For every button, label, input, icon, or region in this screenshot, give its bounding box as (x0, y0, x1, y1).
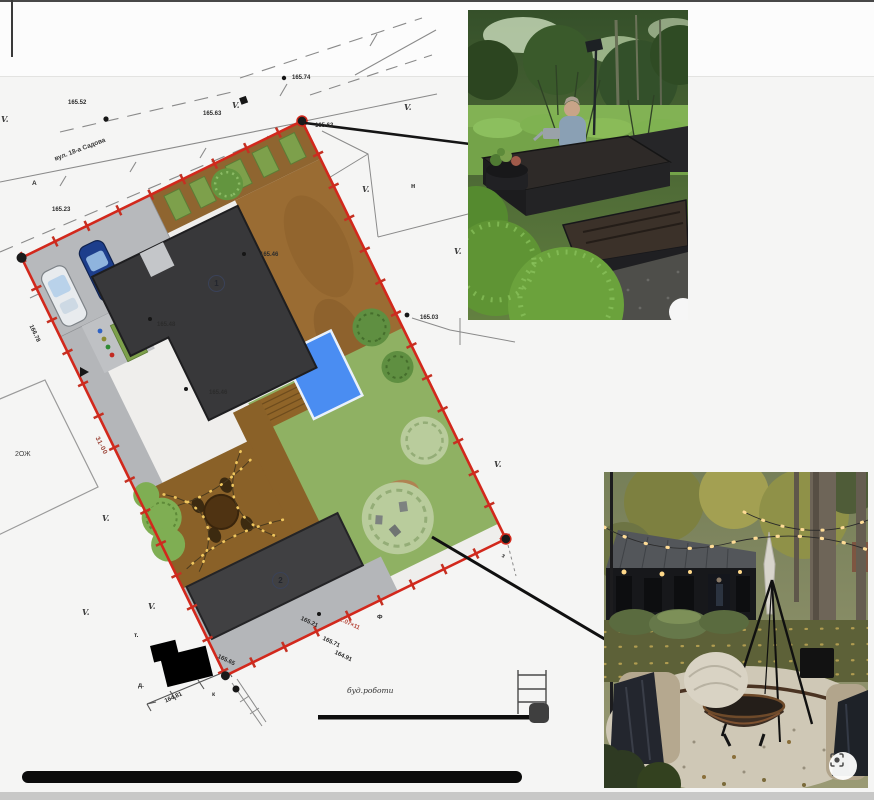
plan-letter: н (411, 183, 415, 190)
gray-square-marker (529, 703, 549, 723)
elevation-label: 165.74 (292, 75, 310, 81)
survey-mark: V. (82, 608, 90, 616)
plan-letter: Ф (377, 615, 383, 622)
bottom-redaction-bar (22, 771, 522, 783)
elevation-label: 165.46 (209, 390, 227, 396)
plan-letter: к (212, 692, 215, 698)
elevation-label: 165.23 (52, 207, 70, 213)
neighbor-building-label: 2ОЖ (15, 451, 31, 458)
elevation-label: 165.48 (157, 322, 175, 328)
survey-mark: V. (404, 103, 412, 111)
fire-pit-patio-photo[interactable] (604, 472, 868, 788)
construction-works-note: буд.роботи (347, 686, 393, 695)
survey-mark: V. (232, 101, 240, 109)
landscape-plan-page: 165.74 165.52 165.63 165.63 165.23 А н 1… (0, 0, 874, 800)
bottom-gray-band (0, 792, 874, 800)
elevation-label: 165.46 (260, 252, 278, 258)
scale-line (318, 715, 532, 720)
garden-photo-art (468, 10, 688, 320)
raised-garden-beds-photo[interactable] (468, 10, 688, 320)
survey-mark: V. (494, 460, 502, 468)
survey-mark: V. (148, 602, 156, 610)
plan-letter: А (32, 181, 37, 188)
black-box (800, 648, 834, 678)
lot-group (9, 114, 512, 685)
elevation-label: 165.03 (420, 315, 438, 321)
plan-letter: т. (134, 633, 138, 640)
elevation-label: 165.63 (203, 111, 221, 117)
plan-letter: д. (138, 683, 144, 690)
elevation-label: 165.63 (315, 123, 333, 129)
white-blanket-chair (684, 652, 748, 708)
visual-search-icon[interactable] (829, 752, 857, 780)
building-2-number: 2 (272, 572, 289, 589)
elevation-label: 165.52 (68, 100, 86, 106)
lens-glyph (829, 752, 845, 768)
survey-mark: V. (102, 514, 110, 522)
survey-mark: V. (1, 115, 9, 123)
survey-mark: V. (454, 247, 462, 255)
survey-mark: V. (362, 185, 370, 193)
building-1-number: 1 (208, 275, 225, 292)
neighbor-building-outline (0, 380, 98, 540)
firepit-photo-art (604, 472, 868, 788)
